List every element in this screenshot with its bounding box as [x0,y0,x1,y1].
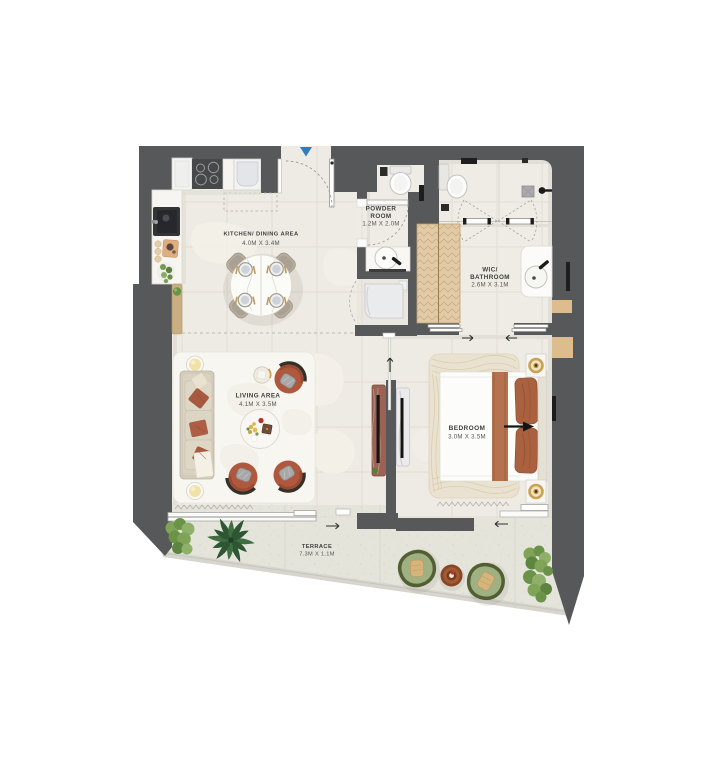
svg-text:4.1M X 3.5M: 4.1M X 3.5M [239,401,277,408]
svg-text:ROOM: ROOM [370,213,391,220]
svg-text:POWDER: POWDER [366,206,397,213]
svg-text:KITCHEN/ DINING AREA: KITCHEN/ DINING AREA [223,232,299,238]
svg-text:BATHROOM: BATHROOM [470,274,510,281]
svg-text:7.3M X 1.1M: 7.3M X 1.1M [299,552,335,558]
svg-text:BEDROOM: BEDROOM [449,425,486,432]
svg-text:TERRACE: TERRACE [302,544,332,550]
svg-text:4.0M X 3.4M: 4.0M X 3.4M [242,240,280,247]
svg-text:2.6M X 3.1M: 2.6M X 3.1M [471,283,508,289]
svg-text:WIC/: WIC/ [482,267,498,274]
svg-text:3.0M X 3.5M: 3.0M X 3.5M [448,434,486,441]
svg-text:LIVING AREA: LIVING AREA [236,393,281,400]
svg-text:1.2M X 2.0M: 1.2M X 2.0M [362,222,399,228]
